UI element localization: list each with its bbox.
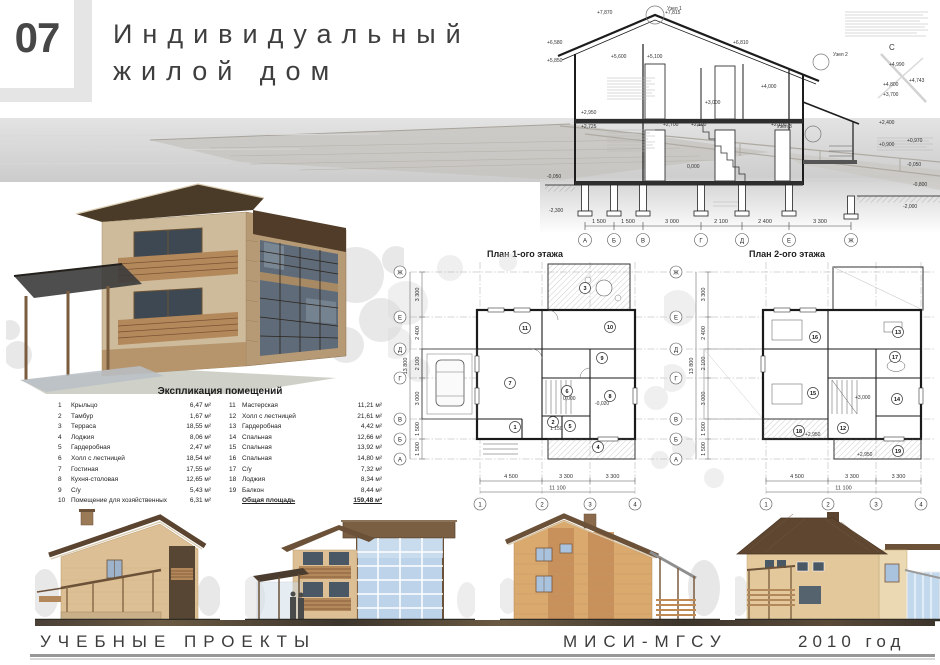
svg-text:17: 17: [892, 355, 898, 361]
svg-text:4 500: 4 500: [504, 474, 518, 480]
svg-text:3: 3: [583, 286, 586, 292]
svg-text:6: 6: [565, 389, 568, 395]
svg-text:13: 13: [895, 330, 901, 336]
svg-text:3 000: 3 000: [415, 392, 421, 406]
svg-text:11 100: 11 100: [835, 486, 851, 492]
svg-text:19: 19: [895, 449, 901, 455]
svg-text:+0,900: +0,900: [879, 142, 895, 148]
svg-text:+6,810: +6,810: [733, 40, 749, 46]
north-label: С: [889, 43, 895, 52]
svg-text:+7,815: +7,815: [665, 10, 681, 16]
svg-text:+3,000: +3,000: [705, 100, 721, 106]
svg-text:Е: Е: [674, 316, 678, 322]
section-veranda: [803, 102, 859, 164]
svg-text:1 500: 1 500: [621, 219, 635, 225]
svg-text:+6,580: +6,580: [547, 40, 563, 46]
plan2-bottom-dims: 4 500 3 300 3 300 11 100: [790, 474, 905, 492]
svg-text:7: 7: [508, 381, 511, 387]
explication-row: 7Гостиная17,55 м²: [58, 465, 211, 476]
svg-text:0,000: 0,000: [563, 396, 576, 402]
svg-text:-2,300: -2,300: [549, 208, 563, 214]
explication-row: 11Мастерская11,21 м²: [229, 401, 382, 412]
svg-text:2 100: 2 100: [415, 357, 421, 371]
svg-text:+2,100: +2,100: [691, 122, 707, 128]
svg-text:+0,970: +0,970: [907, 138, 923, 144]
svg-text:3 300: 3 300: [415, 288, 421, 302]
house-3d-render: [6, 180, 404, 396]
svg-text:5: 5: [568, 424, 571, 430]
explication-row: 10Помещение для хозяйственных работ6,31 …: [58, 496, 211, 507]
svg-text:3 300: 3 300: [701, 288, 707, 302]
elevation-side-right: [500, 508, 720, 626]
svg-text:10: 10: [607, 325, 613, 331]
svg-text:+2,725: +2,725: [581, 124, 597, 130]
gray-band-horizontal: [0, 88, 92, 102]
explication-row: 5Гардеробная2,47 м²: [58, 443, 211, 454]
svg-text:А: А: [674, 458, 678, 464]
explication-row: 19Балкон8,44 м²: [229, 486, 382, 497]
section-dims: 1 500 1 500 3 000 2 100 2 400 3 300: [592, 219, 827, 225]
svg-text:Д: Д: [398, 348, 402, 354]
page-title-line2: жилой дом: [113, 53, 471, 90]
svg-text:В: В: [674, 418, 678, 424]
svg-text:+4,743: +4,743: [909, 78, 925, 84]
svg-text:1 500: 1 500: [701, 422, 707, 436]
svg-text:Б: Б: [398, 438, 402, 444]
svg-text:3 000: 3 000: [665, 219, 679, 225]
plan2-building: [704, 267, 923, 459]
svg-text:+2,950: +2,950: [857, 452, 873, 458]
svg-text:-2,000: -2,000: [903, 204, 917, 210]
svg-text:3 300: 3 300: [606, 474, 620, 480]
elevation-rear: [735, 508, 940, 626]
explication-row: 6Холл с лестницей18,54 м²: [58, 454, 211, 465]
render-left-facade: [102, 212, 246, 376]
svg-text:3 300: 3 300: [892, 474, 906, 480]
explication-row: 15Спальная13,92 м²: [229, 443, 382, 454]
explication-row: 3Терраса18,55 м²: [58, 422, 211, 433]
plan1-title: План 1-ого этажа: [487, 249, 564, 259]
svg-text:-0,050: -0,050: [547, 174, 561, 180]
elevation-front: [245, 508, 475, 626]
explication-row: 8Кухня-столовая12,65 м²: [58, 475, 211, 486]
footer-institute-label: МИСИ-МГСУ: [563, 632, 728, 652]
svg-text:18: 18: [796, 429, 802, 435]
page-title: Индивидуальный жилой дом: [113, 16, 471, 90]
svg-text:1 500: 1 500: [592, 219, 606, 225]
svg-text:+2,100: +2,100: [771, 122, 787, 128]
svg-text:В: В: [641, 239, 645, 245]
explication-row: 16Спальная14,80 м²: [229, 454, 382, 465]
svg-text:Д: Д: [674, 348, 678, 354]
svg-text:+5,600: +5,600: [611, 54, 627, 60]
explication-row: 13Гардеробная4,42 м²: [229, 422, 382, 433]
svg-text:Ж: Ж: [848, 239, 854, 245]
svg-text:13 800: 13 800: [403, 358, 409, 375]
svg-text:1 150: 1 150: [550, 426, 563, 432]
svg-text:2 400: 2 400: [701, 326, 707, 340]
svg-text:1 500: 1 500: [415, 442, 421, 456]
svg-text:2 400: 2 400: [758, 219, 772, 225]
gray-band-vertical: [74, 0, 92, 102]
svg-text:11 100: 11 100: [549, 486, 565, 492]
elevations-ground-strip: [35, 620, 935, 626]
svg-text:3 300: 3 300: [813, 219, 827, 225]
explication-right-column: 11Мастерская11,21 м² 12Холл с лестницей2…: [229, 401, 382, 507]
elevation-side-left: [35, 508, 220, 626]
svg-text:1 500: 1 500: [415, 422, 421, 436]
svg-text:+2,400: +2,400: [879, 120, 895, 126]
svg-text:+5,850: +5,850: [547, 58, 563, 64]
svg-text:16: 16: [812, 335, 818, 341]
explication-row: 12Холл с лестницей21,61 м²: [229, 412, 382, 423]
svg-text:2 100: 2 100: [714, 219, 728, 225]
svg-text:Ж: Ж: [673, 271, 679, 277]
svg-text:+3,000: +3,000: [855, 395, 871, 401]
svg-text:14: 14: [894, 397, 901, 403]
svg-text:-0,020: -0,020: [595, 401, 609, 407]
svg-text:+7,870: +7,870: [597, 10, 613, 16]
svg-text:А: А: [583, 239, 587, 245]
svg-text:15: 15: [810, 391, 816, 397]
plan2-title: План 2-ого этажа: [749, 249, 826, 259]
explication-total-row: Общая площадь159,48 м²: [229, 496, 382, 507]
svg-text:9: 9: [600, 356, 603, 362]
svg-text:+3,700: +3,700: [883, 92, 899, 98]
svg-text:2 400: 2 400: [415, 326, 421, 340]
explication-row: 9С/у5,43 м²: [58, 486, 211, 497]
roof-notes-block: [845, 12, 928, 36]
explication-row: 2Тамбур1,67 м²: [58, 412, 211, 423]
svg-text:-0,800: -0,800: [913, 182, 927, 188]
svg-text:Е: Е: [787, 239, 791, 245]
page-title-line1: Индивидуальный: [113, 16, 471, 53]
svg-text:-0,050: -0,050: [907, 162, 921, 168]
svg-text:3 300: 3 300: [845, 474, 859, 480]
footer-year-label: 2010 год: [798, 632, 905, 652]
svg-text:+4,990: +4,990: [889, 62, 905, 68]
section-axis-circles: А Б В Г Д Е Ж: [579, 234, 858, 247]
floor-slab-ground: [575, 181, 803, 186]
svg-text:1: 1: [513, 425, 516, 431]
explication-row: 4Лоджия8,06 м²: [58, 433, 211, 444]
svg-text:+2,700: +2,700: [663, 122, 679, 128]
project-number: 07: [0, 14, 74, 62]
svg-text:Б: Б: [612, 239, 616, 245]
explication-title: Экспликация помещений: [58, 386, 382, 397]
floor-slab-upper: [575, 119, 803, 124]
explication-table: Экспликация помещений 1Крыльцо6,47 м² 2Т…: [58, 386, 382, 507]
svg-text:В: В: [398, 418, 402, 424]
render-right-block: [246, 210, 346, 366]
explication-row: 14Спальная12,66 м²: [229, 433, 382, 444]
svg-text:Ж: Ж: [397, 271, 403, 277]
project-number-box: 07: [0, 0, 92, 102]
svg-text:Д: Д: [740, 239, 744, 245]
footer-rule-shadow: [30, 658, 935, 660]
svg-text:0,000: 0,000: [687, 164, 700, 170]
explication-row: 18Лоджия8,34 м²: [229, 475, 382, 486]
presentation-board: 07 Индивидуальный жилой дом: [0, 0, 940, 665]
svg-text:4 500: 4 500: [790, 474, 804, 480]
footer-rule: [30, 654, 935, 657]
svg-text:12: 12: [840, 426, 846, 432]
footer-left-label: УЧЕБНЫЕ ПРОЕКТЫ: [40, 632, 316, 652]
floor-plan-1: План 1-ого этажа 3 300 2 400 2 1: [388, 248, 673, 513]
node2-label: Узел 2: [833, 52, 848, 58]
svg-text:+4,800: +4,800: [883, 82, 899, 88]
svg-text:Е: Е: [398, 316, 402, 322]
explication-row: 1Крыльцо6,47 м²: [58, 401, 211, 412]
building-section-drawing: С: [545, 2, 940, 252]
svg-text:+2,950: +2,950: [581, 110, 597, 116]
svg-text:А: А: [398, 458, 402, 464]
explication-row: 17С/у7,32 м²: [229, 465, 382, 476]
svg-text:+4,000: +4,000: [761, 84, 777, 90]
svg-text:Б: Б: [674, 438, 678, 444]
explication-left-column: 1Крыльцо6,47 м² 2Тамбур1,67 м² 3Терраса1…: [58, 401, 211, 507]
plan1-bottom-dims: 4 500 3 300 3 300 11 100: [504, 474, 619, 492]
svg-text:11: 11: [522, 326, 528, 332]
section-roof: [558, 15, 819, 84]
svg-text:1 500: 1 500: [701, 442, 707, 456]
svg-text:3 300: 3 300: [559, 474, 573, 480]
svg-text:8: 8: [608, 394, 611, 400]
svg-text:+5,100: +5,100: [647, 54, 663, 60]
svg-text:13 800: 13 800: [689, 358, 695, 375]
floor-plan-2: План 2-ого этажа Ж Е Д Г В Б А: [664, 248, 940, 513]
svg-text:+2,950: +2,950: [805, 432, 821, 438]
